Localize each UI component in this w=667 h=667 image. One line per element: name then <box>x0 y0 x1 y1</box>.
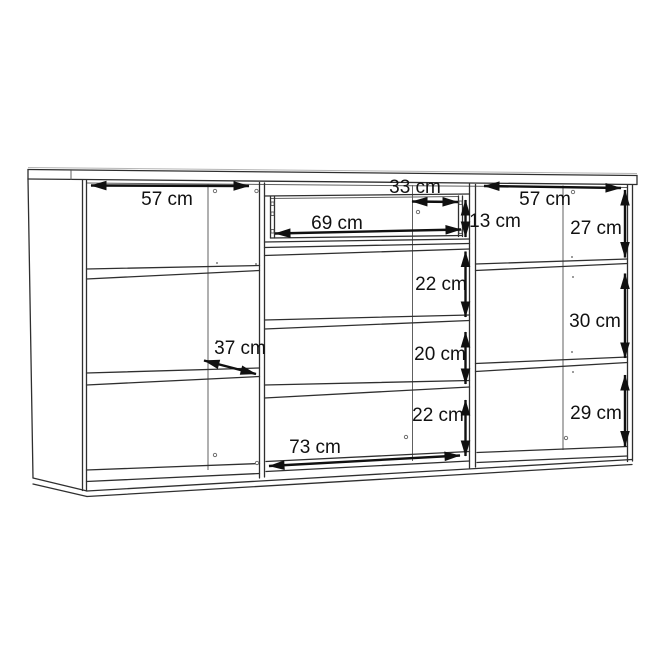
sideboard-drawing: 57 cm 33 cm 69 cm 13 cm 57 cm 27 cm 22 c… <box>0 0 667 667</box>
arrow-drawer-depth <box>412 202 458 203</box>
dim-label-right-middle-height: 30 cm <box>569 311 621 332</box>
dim-label-mid-comp2-height: 20 cm <box>414 344 466 365</box>
dim-label-mid-comp1-height: 22 cm <box>415 274 467 295</box>
dim-label-right-width: 57 cm <box>519 189 571 210</box>
arrow-right-width <box>484 186 621 188</box>
dim-label-shelf-depth: 37 cm <box>214 338 266 359</box>
dim-label-mid-comp3-height: 22 cm <box>412 405 464 426</box>
dim-label-drawer-depth: 33 cm <box>389 177 441 198</box>
arrow-left-width <box>91 186 249 187</box>
dim-label-right-bottom-height: 29 cm <box>570 403 622 424</box>
arrow-shelf-depth <box>204 361 256 375</box>
dim-label-drawer-height: 13 cm <box>469 211 521 232</box>
dim-label-middle-width: 73 cm <box>289 437 341 458</box>
furniture-dimension-diagram: 57 cm 33 cm 69 cm 13 cm 57 cm 27 cm 22 c… <box>0 0 667 667</box>
dim-label-drawer-width: 69 cm <box>311 213 363 234</box>
left-section-shelves <box>87 266 260 482</box>
dim-label-left-width: 57 cm <box>141 189 193 210</box>
dim-label-right-top-height: 27 cm <box>570 218 622 239</box>
right-section-shelves <box>476 259 628 463</box>
arrow-drawer-width <box>275 230 461 234</box>
left-side-panel <box>28 179 87 497</box>
